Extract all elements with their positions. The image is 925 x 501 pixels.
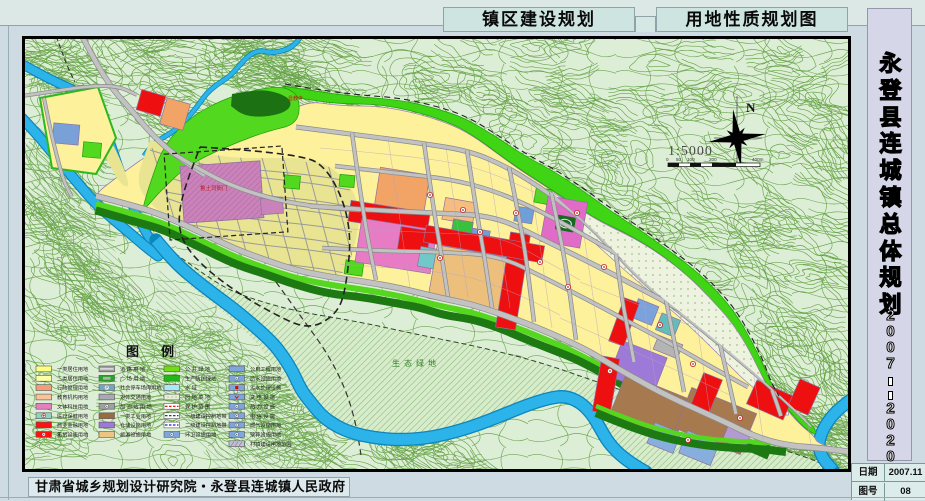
svg-text:医疗保健用地: 医疗保健用地 (57, 412, 88, 420)
svg-text:仓储设施用地: 仓储设施用地 (120, 421, 151, 429)
svg-text:行政管理用地: 行政管理用地 (57, 384, 88, 392)
svg-text:一级建设控制地带: 一级建设控制地带 (185, 412, 227, 420)
svg-text:生产防护绿地: 生产防护绿地 (185, 374, 216, 382)
svg-text:二类居住用地: 二类居住用地 (57, 374, 88, 382)
svg-text:电 信 设 施: 电 信 设 施 (250, 412, 275, 420)
svg-text:变 电 设 施: 变 电 设 施 (250, 393, 275, 401)
svg-text:公用工程用地: 公用工程用地 (250, 365, 281, 373)
svg-text:燃气设施用地: 燃气设施用地 (250, 421, 281, 429)
svg-text:水 域: 水 域 (185, 384, 197, 392)
svg-text:显教寺: 显教寺 (288, 95, 303, 102)
svg-text:加 油 站 用 地: 加 油 站 用 地 (120, 402, 152, 410)
svg-text:对外交通用地: 对外交通用地 (120, 393, 151, 401)
svg-text:热 力 设 施: 热 力 设 施 (250, 402, 275, 410)
svg-text:二级建设控制地带: 二级建设控制地带 (185, 421, 227, 429)
svg-text:社会停车场库用地: 社会停车场库用地 (120, 384, 162, 392)
svg-text:一类居住用地: 一类居住用地 (57, 365, 88, 373)
svg-text:公 共 绿 地: 公 共 绿 地 (185, 365, 210, 373)
svg-text:鲁土司衙门: 鲁土司衙门 (200, 184, 228, 192)
svg-text:环卫设施用地: 环卫设施用地 (185, 431, 216, 439)
svg-text:生态绿地: 生态绿地 (392, 358, 440, 368)
svg-text:集贸设施用地: 集贸设施用地 (57, 431, 88, 439)
svg-text:给水设施用地: 给水设施用地 (250, 374, 281, 382)
svg-text:一类工业用地: 一类工业用地 (120, 412, 151, 420)
svg-text:殡葬设施用地: 殡葬设施用地 (250, 431, 281, 439)
svg-text:保 护 范 围: 保 护 范 围 (185, 402, 210, 410)
svg-text:N: N (746, 100, 756, 115)
svg-text:道 路 用 地: 道 路 用 地 (120, 365, 145, 373)
svg-text:村镇建设用地范围: 村镇建设用地范围 (250, 440, 292, 448)
svg-text:教育机构用地: 教育机构用地 (57, 393, 88, 401)
svg-text:文体科技用地: 文体科技用地 (57, 402, 88, 410)
svg-text:污水处理设施: 污水处理设施 (250, 384, 281, 392)
svg-text:商业金融用地: 商业金融用地 (57, 421, 88, 429)
svg-text:P: P (105, 385, 108, 390)
svg-text:园 地 菜 地: 园 地 菜 地 (185, 393, 210, 401)
svg-text:广 场 用 地: 广 场 用 地 (120, 374, 145, 382)
svg-text:旅游设施用地: 旅游设施用地 (120, 431, 151, 439)
svg-text:图例: 图例 (126, 344, 196, 359)
